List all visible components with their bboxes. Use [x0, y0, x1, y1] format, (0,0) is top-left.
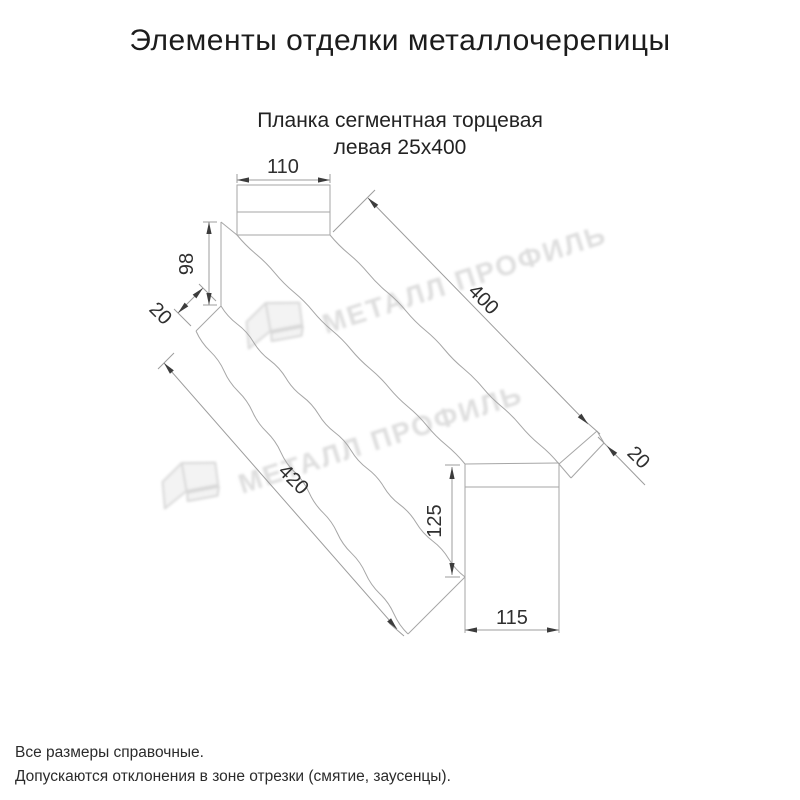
- watermark-upper: МЕТАЛЛ ПРОФИЛЬ: [237, 196, 610, 363]
- watermark-text: МЕТАЛЛ ПРОФИЛЬ: [318, 218, 610, 339]
- bottom-end-edge: [408, 577, 465, 634]
- watermark-lower: МЕТАЛЛ ПРОФИЛЬ: [153, 356, 526, 523]
- right-end-top-edge: [465, 463, 559, 464]
- right-flap-bottom: [571, 443, 604, 478]
- strip-middle-fold: [237, 235, 465, 464]
- dim-label-115: 115: [496, 607, 528, 629]
- drawing-page: Элементы отделки металлочерепицы Планка …: [0, 0, 800, 800]
- left-top-fold: [221, 222, 237, 235]
- right-flap-root: [559, 464, 571, 478]
- dimension-left-height: 98: [176, 222, 209, 305]
- footnotes: Все размеры справочные. Допускаются откл…: [15, 741, 451, 789]
- dim-label-110: 110: [267, 156, 299, 178]
- technical-drawing: МЕТАЛЛ ПРОФИЛЬ МЕТАЛЛ ПРОФИЛЬ: [0, 0, 800, 800]
- dimension-right-height: 125: [424, 467, 452, 575]
- dimension-right-width: 115: [465, 607, 559, 630]
- metall-profil-logo: [153, 453, 225, 512]
- dimension-left-flap: 20: [145, 288, 203, 329]
- footnote-line2: Допускаются отклонения в зоне отрезки (с…: [15, 765, 451, 789]
- dim-label-20-right: 20: [623, 442, 654, 473]
- metall-profil-logo: [237, 293, 309, 352]
- dimension-right-flap: 20: [607, 442, 654, 485]
- dim-label-125: 125: [424, 504, 446, 537]
- dim-label-20-left: 20: [145, 298, 176, 329]
- dimension-top-width: 110: [237, 156, 330, 180]
- left-flap-edge: [196, 306, 221, 331]
- dim-label-98: 98: [176, 253, 198, 275]
- right-flap-top: [559, 431, 597, 464]
- footnote-line1: Все размеры справочные.: [15, 741, 451, 765]
- top-end-face: [237, 185, 330, 235]
